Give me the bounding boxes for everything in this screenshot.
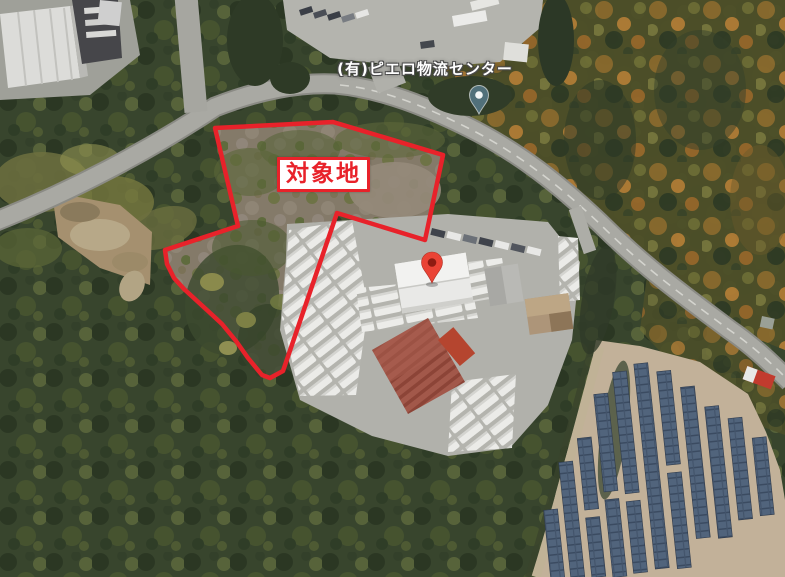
- truck-rows-roadside: [558, 236, 580, 302]
- satellite-imagery: [0, 0, 785, 577]
- destination-marker-dot: [428, 258, 437, 267]
- aerial-map-canvas[interactable]: (有)ピエロ物流センター 対象地: [0, 0, 785, 577]
- place-name-label[interactable]: (有)ピエロ物流センター: [284, 58, 566, 79]
- tan-roof-building: [525, 293, 574, 335]
- gray-roof-building: [484, 264, 524, 307]
- place-pin-dot: [475, 91, 483, 99]
